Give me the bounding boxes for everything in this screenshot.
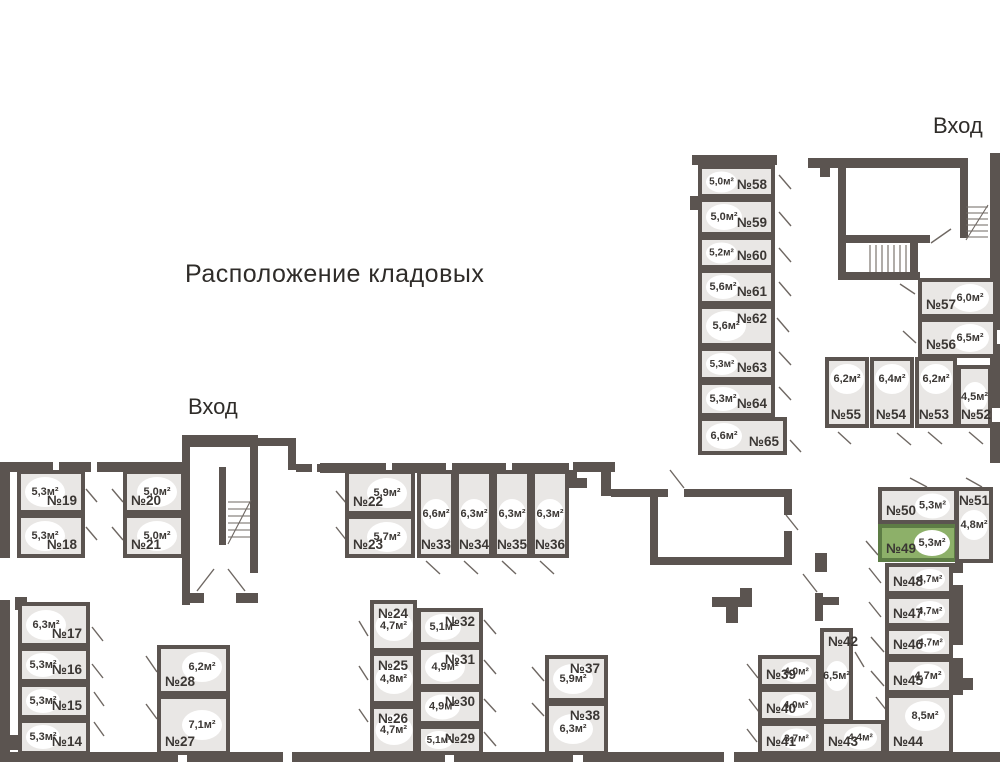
room-area-badge: 6,2м²	[920, 364, 952, 394]
room-number-label: №51	[959, 494, 989, 508]
room-28[interactable]: 6,2м²№28	[157, 645, 230, 695]
room-39[interactable]: 4,0м²№39	[758, 655, 820, 688]
room-number-label: №37	[570, 662, 600, 676]
room-area-badge: 6,3м²	[460, 499, 488, 529]
room-number-label: №54	[876, 408, 906, 422]
room-area-badge: 6,5м²	[951, 324, 989, 352]
room-area-badge: 6,3м²	[498, 499, 526, 529]
room-24[interactable]: 4,7м²№24	[370, 600, 417, 652]
room-53[interactable]: 6,2м²№53	[915, 357, 957, 428]
room-51[interactable]: 4,8м²№51	[955, 487, 993, 563]
room-49[interactable]: 5,3м²№49	[878, 524, 958, 562]
room-area-badge: 5,0м²	[706, 171, 737, 192]
room-23[interactable]: 5,7м²№23	[345, 515, 415, 558]
room-55[interactable]: 6,2м²№55	[825, 357, 869, 428]
room-number-label: №60	[737, 249, 767, 263]
room-62[interactable]: 5,6м²№62	[698, 305, 775, 347]
room-16[interactable]: 5,3м²№16	[18, 647, 90, 683]
room-number-label: №30	[445, 695, 475, 709]
room-25[interactable]: 4,8м²№25	[370, 652, 417, 705]
room-number-label: №47	[893, 607, 923, 621]
room-27[interactable]: 7,1м²№27	[157, 695, 230, 755]
room-number-label: №49	[886, 542, 916, 556]
room-65[interactable]: 6,6м²№65	[698, 417, 787, 455]
room-area-badge: 6,2м²	[830, 364, 864, 394]
room-number-label: №62	[737, 312, 767, 326]
room-43[interactable]: 4,4м²№43	[820, 720, 885, 755]
room-number-label: №24	[378, 607, 408, 621]
room-26[interactable]: 4,7м²№26	[370, 705, 417, 755]
room-number-label: №14	[52, 735, 82, 749]
room-number-label: №18	[47, 538, 77, 552]
room-64[interactable]: 5,3м²№64	[698, 381, 775, 417]
room-number-label: №55	[831, 408, 861, 422]
room-number-label: №29	[445, 732, 475, 746]
room-area-badge: 4,8м²	[960, 510, 988, 540]
room-52[interactable]: 4,5м²№52	[957, 365, 992, 428]
room-number-label: №19	[47, 494, 77, 508]
room-area-badge: 6,6м²	[706, 423, 742, 449]
room-41[interactable]: 3,7м²№41	[758, 722, 820, 755]
room-number-label: №45	[893, 674, 923, 688]
room-38[interactable]: 6,3м²№38	[545, 702, 608, 755]
room-54[interactable]: 6,4м²№54	[870, 357, 914, 428]
room-area-badge: 5,3м²	[914, 530, 950, 556]
room-number-label: №16	[52, 663, 82, 677]
room-area-badge: 5,3м²	[915, 493, 950, 518]
room-number-label: №52	[961, 408, 988, 422]
room-area-badge: 5,2м²	[706, 242, 737, 263]
room-34[interactable]: 6,3м²№34	[455, 470, 493, 558]
room-35[interactable]: 6,3м²№35	[493, 470, 531, 558]
room-40[interactable]: 4,0м²№40	[758, 688, 820, 722]
room-area-badge: 5,3м²	[706, 387, 740, 411]
room-number-label: №15	[52, 699, 82, 713]
room-area-badge: 5,3м²	[706, 353, 738, 375]
room-number-label: №48	[893, 575, 923, 589]
room-number-label: №23	[353, 538, 383, 552]
room-44[interactable]: 8,5м²№44	[885, 694, 953, 755]
room-number-label: №61	[737, 285, 767, 299]
room-50[interactable]: 5,3м²№50	[878, 487, 958, 524]
room-number-label: №43	[828, 735, 858, 749]
room-20[interactable]: 5,0м²№20	[123, 470, 185, 514]
room-57[interactable]: 6,0м²№57	[918, 278, 997, 318]
room-29[interactable]: 5,1м²№29	[417, 725, 483, 755]
room-59[interactable]: 5,0м²№59	[698, 198, 775, 236]
room-number-label: №26	[378, 712, 408, 726]
room-48[interactable]: 4,7м²№48	[885, 563, 953, 595]
room-number-label: №59	[737, 216, 767, 230]
room-number-label: №44	[893, 735, 923, 749]
room-32[interactable]: 5,1м²№32	[417, 608, 483, 646]
room-area-badge: 6,4м²	[875, 364, 909, 394]
room-number-label: №27	[165, 735, 195, 749]
room-18[interactable]: 5,3м²№18	[17, 514, 85, 558]
room-number-label: №40	[766, 702, 796, 716]
room-number-label: №25	[378, 659, 408, 673]
room-number-label: №57	[926, 298, 956, 312]
room-14[interactable]: 5,3м²№14	[18, 719, 90, 755]
room-47[interactable]: 4,7м²№47	[885, 595, 953, 627]
room-number-label: №50	[886, 504, 916, 518]
room-45[interactable]: 4,7м²№45	[885, 658, 953, 694]
room-number-label: №21	[131, 538, 161, 552]
room-19[interactable]: 5,3м²№19	[17, 470, 85, 514]
room-33[interactable]: 6,6м²№33	[417, 470, 455, 558]
room-15[interactable]: 5,3м²№15	[18, 683, 90, 719]
room-number-label: №56	[926, 338, 956, 352]
room-area-badge: 6,3м²	[536, 499, 564, 529]
room-31[interactable]: 4,9м²№31	[417, 646, 483, 688]
room-number-label: №58	[737, 178, 767, 192]
room-number-label: №33	[421, 538, 451, 552]
room-number-label: №20	[131, 494, 161, 508]
room-60[interactable]: 5,2м²№60	[698, 236, 775, 269]
room-area-badge: 8,5м²	[905, 701, 945, 731]
room-number-label: №41	[766, 735, 796, 749]
room-area-badge: 6,6м²	[422, 499, 450, 529]
room-30[interactable]: 4,9м²№30	[417, 688, 483, 725]
room-number-label: №28	[165, 675, 195, 689]
room-number-label: №63	[737, 361, 767, 375]
room-42[interactable]: 6,5м²№42	[820, 628, 853, 723]
room-37[interactable]: 5,9м²№37	[545, 655, 608, 702]
room-number-label: №53	[919, 408, 949, 422]
room-36[interactable]: 6,3м²№36	[531, 470, 569, 558]
room-17[interactable]: 6,3м²№17	[18, 602, 90, 647]
room-21[interactable]: 5,0м²№21	[123, 514, 185, 558]
rooms-layer: 5,3м²№145,3м²№155,3м²№166,3м²№175,3м²№18…	[0, 0, 1000, 762]
room-area-badge: 6,0м²	[951, 284, 989, 312]
room-number-label: №35	[497, 538, 527, 552]
room-22[interactable]: 5,9м²№22	[345, 470, 415, 515]
room-number-label: №64	[737, 397, 767, 411]
room-46[interactable]: 4,7м²№46	[885, 627, 953, 658]
room-number-label: №65	[749, 435, 779, 449]
room-number-label: №39	[766, 668, 796, 682]
room-56[interactable]: 6,5м²№56	[918, 318, 997, 358]
room-number-label: №17	[52, 627, 82, 641]
room-area-badge: 6,5м²	[825, 661, 848, 691]
room-61[interactable]: 5,6м²№61	[698, 269, 775, 305]
room-63[interactable]: 5,3м²№63	[698, 347, 775, 381]
room-number-label: №36	[535, 538, 565, 552]
floor-plan: Расположение кладовых Вход Вход 5,3м²№14…	[0, 0, 1000, 762]
room-58[interactable]: 5,0м²№58	[698, 165, 775, 198]
room-number-label: №34	[459, 538, 489, 552]
room-number-label: №46	[893, 638, 923, 652]
room-number-label: №22	[353, 495, 383, 509]
room-number-label: №42	[828, 635, 858, 649]
room-area-badge: 5,6м²	[706, 275, 740, 299]
room-number-label: №32	[445, 615, 475, 629]
room-number-label: №38	[570, 709, 600, 723]
room-number-label: №31	[445, 653, 475, 667]
